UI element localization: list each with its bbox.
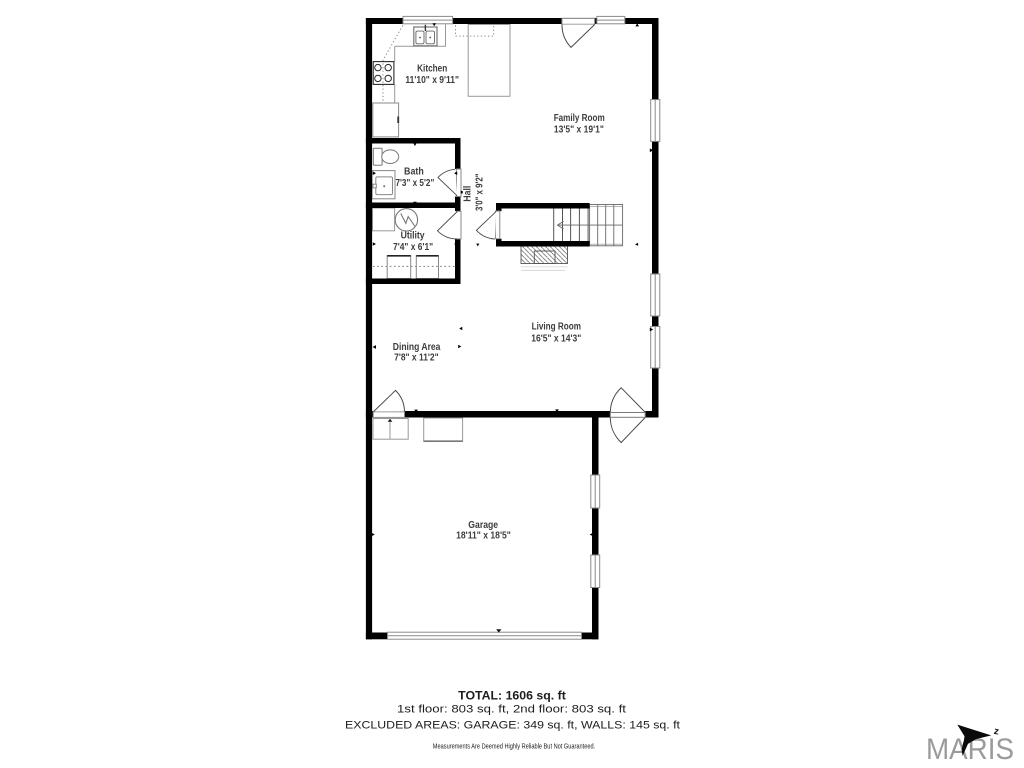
svg-text:13'5" x 19'1": 13'5" x 19'1" [554, 124, 604, 135]
svg-text:16'5" x 14'3": 16'5" x 14'3" [531, 333, 581, 344]
svg-text:3'0" x 9'2": 3'0" x 9'2" [474, 173, 485, 211]
svg-text:1st floor: 803 sq. ft, 2nd flo: 1st floor: 803 sq. ft, 2nd floor: 803 sq… [397, 703, 627, 715]
svg-text:EXCLUDED AREAS: GARAGE: 349 sq: EXCLUDED AREAS: GARAGE: 349 sq. ft, WALL… [345, 720, 681, 732]
svg-text:Hall: Hall [463, 186, 474, 202]
svg-text:Kitchen: Kitchen [417, 64, 447, 75]
svg-text:TOTAL: 1606 sq. ft: TOTAL: 1606 sq. ft [458, 689, 566, 703]
svg-text:11'10" x 9'11": 11'10" x 9'11" [405, 75, 459, 86]
svg-text:Utility: Utility [401, 231, 425, 242]
svg-text:Family Room: Family Room [554, 113, 605, 124]
svg-text:Bath: Bath [404, 167, 424, 178]
svg-text:7'8" x 11'2": 7'8" x 11'2" [394, 353, 439, 364]
svg-text:7'3" x 5'2": 7'3" x 5'2" [395, 178, 434, 189]
svg-text:Dining Area: Dining Area [393, 342, 441, 353]
svg-text:Garage: Garage [468, 520, 498, 531]
svg-text:18'11" x 18'5": 18'11" x 18'5" [456, 530, 511, 541]
svg-text:Measurements Are Deemed Highly: Measurements Are Deemed Highly Reliable … [433, 742, 595, 751]
svg-text:Living Room: Living Room [532, 322, 581, 333]
svg-text:7'4" x 6'1": 7'4" x 6'1" [393, 242, 433, 253]
